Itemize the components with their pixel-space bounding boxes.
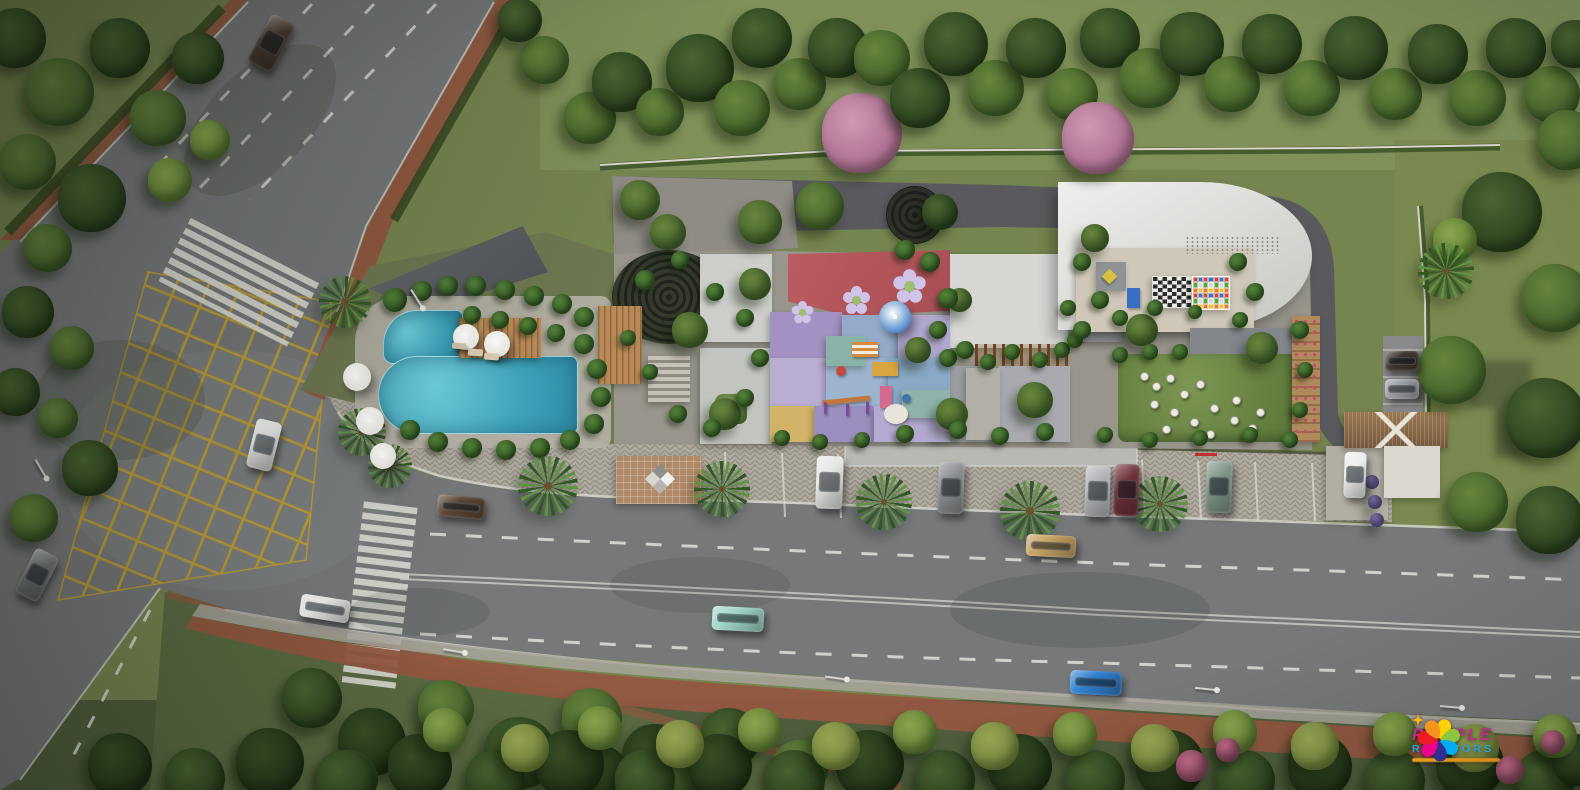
shrub xyxy=(466,276,486,296)
car-blue-main-road xyxy=(1069,670,1122,697)
car-sage-bay xyxy=(1205,461,1233,514)
shrub xyxy=(530,438,550,458)
car-white-main-road xyxy=(299,593,352,624)
shrub xyxy=(491,311,509,329)
umbrella-blue xyxy=(879,301,911,333)
shrub xyxy=(463,306,481,324)
tree xyxy=(890,68,950,128)
shrub xyxy=(591,387,611,407)
shrub xyxy=(383,288,407,312)
tree xyxy=(1370,68,1422,120)
shrub xyxy=(584,414,604,434)
shrub xyxy=(462,438,482,458)
shrub xyxy=(524,286,544,306)
tree xyxy=(0,368,40,416)
shrub xyxy=(1229,253,1247,271)
tree xyxy=(10,494,58,542)
tree xyxy=(1081,224,1109,252)
tree xyxy=(620,180,660,220)
shrub xyxy=(1192,430,1208,446)
tree xyxy=(0,8,46,68)
car-dark-topleft-road xyxy=(247,13,296,73)
shrub xyxy=(1172,344,1188,360)
tree xyxy=(1291,722,1339,770)
shrub xyxy=(895,240,915,260)
sun-lounger xyxy=(452,343,466,350)
tree xyxy=(501,724,549,772)
shrub xyxy=(812,434,828,450)
tree xyxy=(498,0,542,42)
tree xyxy=(1006,18,1066,78)
palm-tree xyxy=(694,461,750,517)
shrub xyxy=(1060,300,1076,316)
tree xyxy=(423,708,467,752)
shrub xyxy=(428,432,448,452)
shrub xyxy=(1292,402,1308,418)
tree xyxy=(1246,332,1278,364)
tree xyxy=(1522,264,1580,332)
tree xyxy=(1365,475,1379,489)
tree xyxy=(1448,472,1508,532)
tree xyxy=(1053,712,1097,756)
shrub xyxy=(980,354,996,370)
tree xyxy=(90,18,150,78)
shrub xyxy=(560,430,580,450)
shrub xyxy=(896,425,914,443)
shrub xyxy=(751,349,769,367)
tree xyxy=(1065,750,1125,790)
car-teal-main-road xyxy=(711,606,764,633)
shrub xyxy=(1032,352,1048,368)
street-light xyxy=(1440,705,1462,709)
shrub xyxy=(706,283,724,301)
umbrella-white xyxy=(343,363,371,391)
shrub xyxy=(1112,347,1128,363)
logo-star-icon xyxy=(1412,712,1462,764)
shrub xyxy=(1188,305,1202,319)
tree xyxy=(905,337,931,363)
car-white-gatehouse xyxy=(1343,452,1367,499)
tree xyxy=(650,214,686,250)
tree xyxy=(1176,750,1208,782)
car-white-bay xyxy=(815,456,844,510)
shrub xyxy=(496,440,516,460)
tree xyxy=(2,286,54,338)
car-silver-bay xyxy=(1084,466,1111,518)
tree xyxy=(1324,16,1388,80)
street-light xyxy=(825,675,847,680)
tree xyxy=(1516,486,1580,554)
shrub xyxy=(671,251,689,269)
street-light xyxy=(443,648,465,654)
shrub xyxy=(1091,291,1109,309)
shrub xyxy=(1097,427,1113,443)
tree xyxy=(1368,495,1382,509)
tree xyxy=(672,312,708,348)
shrub xyxy=(949,421,967,439)
shrub xyxy=(574,307,594,327)
tree xyxy=(236,728,304,790)
umbrella-white xyxy=(356,407,384,435)
aerial-site-render: PURPLE REALTORS xyxy=(0,0,1580,790)
street-light xyxy=(35,459,48,479)
shrub xyxy=(1073,253,1091,271)
shrub xyxy=(642,364,658,380)
shrub xyxy=(547,324,565,342)
palm-tree xyxy=(319,276,371,328)
shrub xyxy=(620,330,636,346)
car-brown-parked xyxy=(436,494,486,520)
tree xyxy=(62,440,118,496)
shrub xyxy=(920,252,940,272)
shrub xyxy=(1246,283,1264,301)
palm-tree xyxy=(1132,476,1188,532)
tree xyxy=(130,90,186,146)
tree xyxy=(1538,110,1580,170)
tree xyxy=(656,720,704,768)
shrub xyxy=(939,349,957,367)
tree xyxy=(739,268,771,300)
tree xyxy=(1017,382,1053,418)
shrub xyxy=(1142,432,1158,448)
car-gray-bay xyxy=(937,462,965,515)
palm-tree xyxy=(1000,481,1060,541)
shrub xyxy=(991,427,1009,445)
car-white-junction xyxy=(245,418,282,473)
tree xyxy=(165,748,225,790)
tree xyxy=(738,200,782,244)
tree xyxy=(1551,20,1580,68)
tree xyxy=(738,708,782,752)
car-maroon-bay xyxy=(1113,464,1140,517)
shrub xyxy=(956,341,974,359)
palm-tree xyxy=(856,474,912,530)
tree xyxy=(521,36,569,84)
shrub xyxy=(1147,300,1163,316)
shrub xyxy=(929,321,947,339)
shrub xyxy=(774,430,790,446)
tree xyxy=(578,706,622,750)
shrub xyxy=(1242,427,1258,443)
umbrella-white xyxy=(370,443,396,469)
developer-logo: PURPLE REALTORS xyxy=(1412,712,1562,776)
tree xyxy=(1126,314,1158,346)
tree xyxy=(1216,738,1240,762)
shrub xyxy=(552,294,572,314)
tree xyxy=(1131,724,1179,772)
tree xyxy=(50,326,94,370)
shrub xyxy=(587,359,607,379)
shrub xyxy=(495,280,515,300)
street-light xyxy=(1195,687,1217,691)
tree xyxy=(796,182,844,230)
shrub xyxy=(1291,321,1309,339)
shrub xyxy=(400,420,420,440)
shrub xyxy=(1073,321,1091,339)
sun-lounger xyxy=(468,348,483,356)
tree xyxy=(282,668,342,728)
tree xyxy=(172,32,224,84)
shrub xyxy=(574,334,594,354)
palm-tree xyxy=(1418,243,1474,299)
tree xyxy=(915,750,975,790)
tree xyxy=(893,710,937,754)
tree xyxy=(1062,102,1134,174)
shrub xyxy=(635,270,655,290)
tree xyxy=(24,224,72,272)
shrub xyxy=(1232,312,1248,328)
tree xyxy=(58,164,126,232)
tree xyxy=(148,158,192,202)
tree xyxy=(1418,336,1486,404)
shrub xyxy=(1112,310,1128,326)
shrub xyxy=(703,419,721,437)
shrub xyxy=(736,309,754,327)
tree xyxy=(971,722,1019,770)
tree xyxy=(26,58,94,126)
shrub xyxy=(438,276,458,296)
sun-lounger xyxy=(484,352,499,360)
shrub xyxy=(1036,423,1054,441)
tree xyxy=(1450,70,1506,126)
shrub xyxy=(1142,344,1158,360)
shrub xyxy=(736,389,754,407)
tree xyxy=(714,80,770,136)
tree xyxy=(88,733,152,790)
shrub xyxy=(1282,432,1298,448)
shrub xyxy=(519,317,537,335)
tree xyxy=(190,120,230,160)
palm-tree xyxy=(518,456,578,516)
tree xyxy=(1370,513,1384,527)
tree xyxy=(0,134,56,190)
tree xyxy=(1373,712,1417,756)
car-gray-east xyxy=(1385,379,1419,399)
car-gray-left-road xyxy=(14,547,60,603)
shrub xyxy=(1004,344,1020,360)
tree xyxy=(732,8,792,68)
tree xyxy=(1506,378,1580,458)
scenery-layer xyxy=(0,0,1580,790)
tree xyxy=(812,722,860,770)
shrub xyxy=(669,405,687,423)
tree xyxy=(922,194,958,230)
car-gold-main-road xyxy=(1025,534,1076,559)
shrub xyxy=(854,432,870,448)
tree xyxy=(38,398,78,438)
shrub xyxy=(1297,362,1313,378)
logo-small-star xyxy=(1413,715,1423,725)
car-dark-east xyxy=(1385,351,1419,371)
